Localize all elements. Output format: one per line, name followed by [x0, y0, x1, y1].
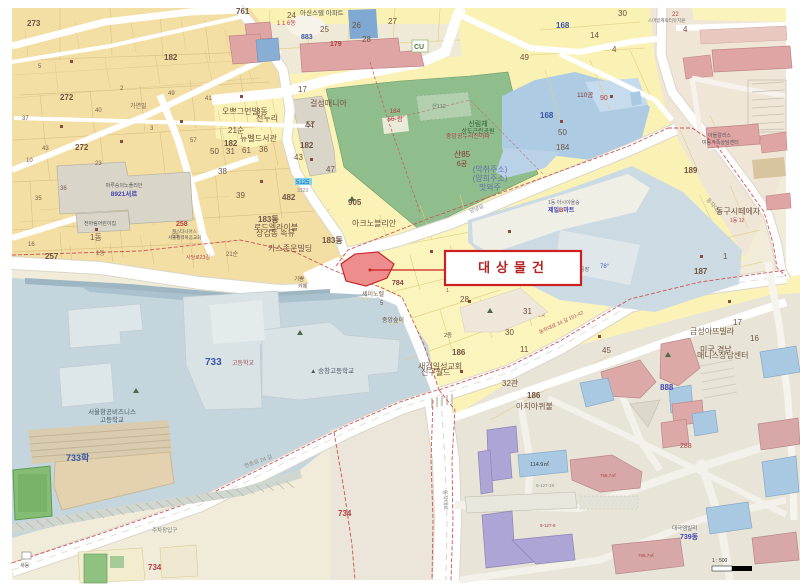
svg-text:신림체: 신림체	[468, 119, 487, 128]
svg-text:272: 272	[75, 143, 89, 152]
svg-text:50: 50	[210, 147, 219, 156]
svg-text:45: 45	[602, 346, 611, 355]
svg-text:182: 182	[300, 141, 314, 150]
svg-text:38: 38	[218, 167, 227, 176]
svg-text:755.7㎡: 755.7㎡	[600, 472, 616, 478]
svg-text:39: 39	[236, 191, 245, 200]
svg-text:카스종운빌딩: 카스종운빌딩	[268, 243, 312, 253]
svg-text:여동가족상담센터: 여동가족상담센터	[702, 139, 739, 146]
svg-text:대상물건: 대상물건	[478, 260, 550, 275]
svg-text:273: 273	[27, 19, 41, 28]
svg-text:CU: CU	[414, 44, 424, 51]
svg-text:179: 179	[330, 41, 342, 48]
svg-text:43: 43	[42, 146, 49, 152]
svg-text:47: 47	[326, 165, 335, 174]
svg-text:세이노렐: 세이노렐	[362, 290, 385, 298]
svg-text:1동: 1동	[96, 250, 105, 257]
svg-text:가연빌: 가연빌	[130, 102, 147, 110]
svg-text:755.7㎡: 755.7㎡	[638, 552, 654, 558]
svg-text:16: 16	[750, 334, 759, 343]
svg-text:288: 288	[680, 443, 692, 450]
svg-text:739동: 739동	[680, 533, 699, 541]
svg-text:금성아뜨빌라: 금성아뜨빌라	[690, 326, 735, 336]
svg-text:761: 761	[236, 7, 250, 16]
svg-text:183동: 183동	[322, 236, 343, 245]
svg-text:(악취주소): (악취주소)	[473, 164, 508, 174]
svg-text:고등학교: 고등학교	[232, 359, 255, 367]
svg-text:733학: 733학	[66, 452, 90, 463]
svg-text:1동: 1동	[90, 233, 102, 242]
svg-text:36: 36	[60, 186, 67, 192]
svg-text:4: 4	[612, 45, 617, 54]
svg-text:41: 41	[205, 96, 212, 102]
svg-text:168: 168	[540, 111, 554, 120]
svg-text:168: 168	[556, 21, 570, 30]
svg-text:카페: 카페	[298, 283, 308, 290]
svg-text:182: 182	[164, 53, 178, 62]
svg-text:61: 61	[242, 146, 251, 155]
svg-text:32관: 32관	[502, 378, 519, 388]
svg-text:78°: 78°	[600, 264, 610, 270]
svg-text:186: 186	[527, 391, 541, 400]
svg-text:272: 272	[60, 93, 74, 102]
svg-text:2동: 2동	[444, 332, 452, 339]
svg-text:아크노블리안: 아크노블리안	[352, 218, 397, 228]
svg-text:매니스상담센터: 매니스상담센터	[697, 350, 749, 360]
svg-text:새동: 새동	[20, 562, 30, 569]
svg-text:9-127-8: 9-127-8	[540, 523, 556, 528]
svg-text:883: 883	[301, 34, 313, 41]
svg-text:17: 17	[298, 85, 307, 94]
svg-text:사당로23길: 사당로23길	[186, 254, 210, 261]
svg-text:21순: 21순	[226, 251, 239, 258]
svg-text:110공: 110공	[577, 91, 593, 99]
svg-text:49: 49	[168, 91, 175, 97]
svg-text:90: 90	[600, 95, 608, 102]
svg-text:28: 28	[362, 35, 371, 44]
svg-text:11: 11	[520, 345, 529, 354]
svg-text:784: 784	[392, 280, 404, 287]
svg-text:1 1 6동: 1 1 6동	[277, 20, 296, 27]
svg-text:중앙공누리신아파: 중앙공누리신아파	[446, 132, 491, 140]
svg-text:53: 53	[172, 234, 179, 240]
svg-text:14: 14	[590, 31, 599, 40]
svg-text:대극엠빌리: 대극엠빌리	[672, 524, 697, 532]
svg-text:10: 10	[26, 158, 33, 164]
svg-text:49: 49	[520, 53, 529, 62]
svg-text:40: 40	[95, 108, 102, 114]
svg-text:기쁨: 기쁨	[294, 275, 304, 283]
svg-text:3323: 3323	[297, 188, 308, 194]
svg-text:35: 35	[35, 196, 42, 202]
svg-text:1 : 500: 1 : 500	[712, 558, 728, 564]
svg-text:아들칼리스: 아들칼리스	[708, 132, 731, 139]
svg-text:182: 182	[224, 139, 238, 148]
svg-text:5125: 5125	[296, 180, 310, 186]
svg-text:17: 17	[733, 318, 742, 327]
svg-text:맛와주: 맛와주	[479, 182, 501, 192]
svg-text:전누리: 전누리	[256, 113, 278, 123]
svg-text:1동 아시아울승: 1동 아시아울승	[548, 199, 580, 206]
svg-text:733: 733	[205, 357, 222, 368]
svg-text:16: 16	[28, 242, 35, 248]
svg-text:36: 36	[259, 145, 268, 154]
svg-text:31: 31	[523, 307, 532, 316]
svg-text:26: 26	[352, 21, 361, 30]
svg-text:186: 186	[452, 348, 466, 357]
svg-text:184: 184	[390, 108, 401, 115]
svg-text:서울항공비즈니스: 서울항공비즈니스	[88, 407, 136, 416]
svg-text:37: 37	[22, 116, 29, 122]
svg-text:189: 189	[684, 166, 698, 175]
svg-text:23: 23	[95, 161, 102, 167]
svg-text:31: 31	[226, 147, 235, 156]
svg-text:오쁘그먼빌: 오쁘그먼빌	[222, 106, 259, 116]
svg-text:산85: 산85	[454, 149, 471, 159]
svg-text:30: 30	[618, 9, 627, 18]
svg-text:신구월드: 신구월드	[421, 367, 450, 377]
svg-text:고등학교: 고등학교	[100, 415, 124, 424]
svg-text:뉴벨드서관: 뉴벨드서관	[240, 133, 277, 143]
svg-text:주차장입구: 주차장입구	[152, 526, 177, 534]
svg-text:6공: 6공	[457, 160, 468, 168]
svg-text:9-127-19: 9-127-19	[536, 483, 555, 488]
svg-text:482: 482	[282, 193, 296, 202]
svg-text:(양희주소): (양희주소)	[473, 173, 508, 183]
svg-text:28: 28	[460, 295, 469, 304]
svg-text:마루숭의노플리안: 마루숭의노플리안	[106, 182, 143, 189]
svg-text:상검동 속뮤: 상검동 속뮤	[256, 228, 295, 238]
svg-text:50: 50	[558, 128, 567, 137]
svg-text:▲ 숭창고등학교: ▲ 숭창고등학교	[310, 366, 354, 375]
svg-text:27: 27	[388, 17, 397, 26]
svg-text:25: 25	[320, 25, 329, 34]
svg-text:57: 57	[190, 138, 197, 144]
svg-text:전아림어린이집: 전아림어린이집	[84, 220, 116, 227]
svg-text:동구시떼에자: 동구시떼에자	[716, 206, 761, 216]
svg-text:66-광: 66-광	[387, 115, 402, 123]
svg-text:1: 1	[723, 252, 728, 261]
svg-text:184: 184	[556, 143, 570, 152]
svg-text:8921서르: 8921서르	[111, 189, 137, 198]
svg-text:중앙숲이: 중앙숲이	[382, 316, 404, 324]
svg-text:1동 12: 1동 12	[730, 218, 745, 224]
svg-text:114.9㎡: 114.9㎡	[530, 460, 549, 468]
svg-text:아지아퀴불: 아지아퀴불	[516, 401, 553, 411]
svg-text:257: 257	[45, 252, 59, 261]
svg-text:4: 4	[683, 25, 688, 34]
svg-text:888: 888	[660, 383, 674, 392]
svg-text:57: 57	[306, 120, 315, 129]
svg-text:제일B마트: 제일B마트	[548, 206, 575, 214]
svg-text:걸성매니아: 걸성매니아	[310, 98, 347, 108]
svg-text:아신스텔 아파트: 아신스텔 아파트	[300, 8, 344, 17]
svg-text:1: 1	[446, 288, 449, 294]
svg-text:187: 187	[694, 267, 708, 276]
svg-text:734: 734	[338, 509, 352, 518]
svg-text:734: 734	[148, 563, 162, 572]
svg-text:30: 30	[505, 328, 514, 337]
svg-text:43: 43	[294, 153, 303, 162]
svg-text:24: 24	[287, 11, 296, 20]
svg-text:스마일캐릭터유치원: 스마일캐릭터유치원	[648, 17, 685, 24]
svg-text:258: 258	[176, 221, 188, 228]
